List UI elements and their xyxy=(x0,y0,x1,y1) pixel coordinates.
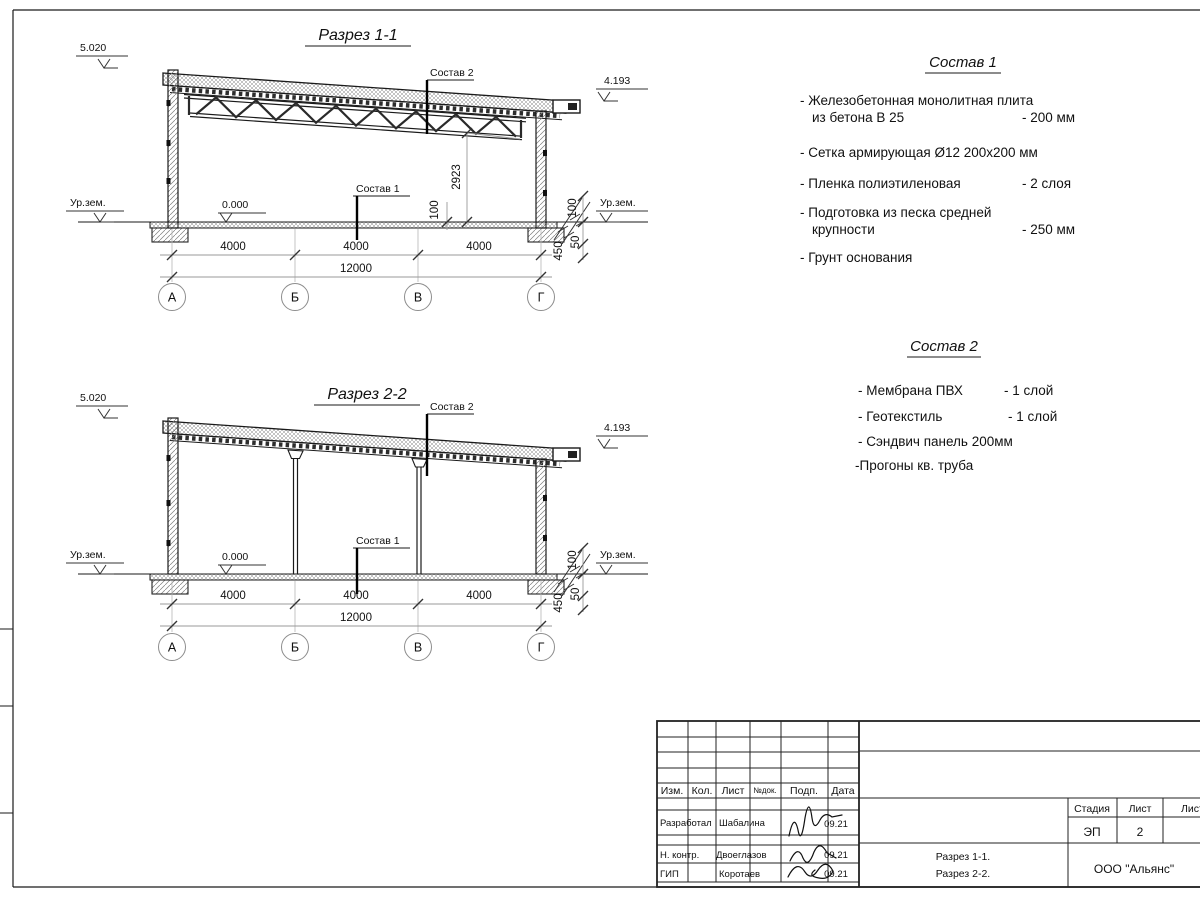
composition1-item: крупности xyxy=(812,222,875,237)
dim-stack-right: 100 50 450 xyxy=(553,191,588,263)
svg-text:100: 100 xyxy=(567,550,579,569)
svg-text:4000: 4000 xyxy=(220,590,246,602)
composition2-value: - 1 слой xyxy=(1004,383,1053,398)
drawing-canvas: Разрез 1-1 xyxy=(0,0,1200,900)
axis-g: Г xyxy=(538,291,545,305)
roof-slab-2 xyxy=(163,421,566,461)
section1-title: Разрез 1-1 xyxy=(318,27,397,44)
level-mark-4193-2: 4.193 xyxy=(596,422,648,448)
level-mark-4193: 4.193 xyxy=(596,75,648,101)
composition1-item: - Пленка полиэтиленовая xyxy=(800,176,961,191)
tb-header-kol: Кол. xyxy=(692,785,713,797)
composition-2: Состав 2 - Мембрана ПВХ - 1 слой - Геоте… xyxy=(855,338,1057,473)
composition1-value: - 2 слоя xyxy=(1022,176,1071,191)
section-2-2: Разрез 2-2 xyxy=(66,386,648,661)
svg-text:100: 100 xyxy=(429,200,441,219)
svg-text:100: 100 xyxy=(567,198,579,217)
composition1-item: из бетона В 25 xyxy=(812,110,904,125)
svg-text:Ур.зем.: Ур.зем. xyxy=(70,197,106,209)
composition1-value: - 200 мм xyxy=(1022,110,1075,125)
tb-stadia-value: ЭП xyxy=(1083,825,1100,839)
axis-a: А xyxy=(168,291,177,305)
tb-name-1: Двоеглазов xyxy=(716,850,767,861)
tb-date-0: 09.21 xyxy=(824,819,848,830)
level-mark-5020-2: 5.020 xyxy=(76,392,128,418)
column-g-2 xyxy=(536,459,546,574)
svg-text:5.020: 5.020 xyxy=(80,42,106,54)
tb-header-data: Дата xyxy=(831,785,854,797)
svg-text:4000: 4000 xyxy=(343,590,369,602)
tb-name-0: Шабалина xyxy=(719,818,766,829)
foundation-right xyxy=(528,228,564,242)
column-b-intermediate xyxy=(288,450,303,574)
leader-sostav1-label-2: Состав 1 xyxy=(356,535,400,547)
tb-role-2: ГИП xyxy=(660,869,679,880)
svg-text:0.000: 0.000 xyxy=(222,551,248,563)
svg-text:0.000: 0.000 xyxy=(222,199,248,211)
svg-text:50: 50 xyxy=(570,236,582,249)
composition1-item: - Железобетонная монолитная плита xyxy=(800,93,1034,108)
axis-b-2: Б xyxy=(291,641,299,655)
svg-text:4.193: 4.193 xyxy=(604,422,630,434)
composition2-item: - Мембрана ПВХ xyxy=(858,383,963,398)
axis-bubbles-2: А Б В Г xyxy=(159,634,555,661)
dim-stack-right-2: 100 50 450 xyxy=(553,543,588,615)
axis-g-2: Г xyxy=(538,641,545,655)
svg-text:Ур.зем.: Ур.зем. xyxy=(600,197,636,209)
svg-text:4000: 4000 xyxy=(343,241,369,253)
composition1-value: - 250 мм xyxy=(1022,222,1075,237)
svg-text:4000: 4000 xyxy=(220,241,246,253)
leader-sostav2-label: Состав 2 xyxy=(430,67,474,79)
tb-header-izm: Изм. xyxy=(661,785,684,797)
title-block: Изм. Кол. Лист №док. Подп. Дата Разработ… xyxy=(657,721,1200,887)
tb-listov-header: Листов xyxy=(1181,803,1200,815)
tb-list-header: Лист xyxy=(1129,803,1152,815)
foundation-left-2 xyxy=(152,580,188,594)
svg-text:12000: 12000 xyxy=(340,263,372,275)
roof-edge-cap-2 xyxy=(553,448,580,461)
svg-text:450: 450 xyxy=(553,241,565,260)
composition2-item: - Сэндвич панель 200мм xyxy=(858,434,1013,449)
svg-text:Ур.зем.: Ур.зем. xyxy=(600,549,636,561)
roof-edge-cap xyxy=(553,100,580,113)
drawing-sheet: Разрез 1-1 xyxy=(0,0,1200,900)
leader-sostav1-label: Состав 1 xyxy=(356,183,400,195)
ground-level-left-2: Ур.зем. xyxy=(66,549,124,574)
composition2-title: Состав 2 xyxy=(910,338,978,355)
leader-sostav2-label-2: Состав 2 xyxy=(430,401,474,413)
tb-doc-line2: Разрез 2-2. xyxy=(936,868,990,880)
leader-sostav1: Состав 1 xyxy=(353,183,410,240)
ground-level-left: Ур.зем. xyxy=(66,197,124,222)
foundation-right-2 xyxy=(528,580,564,594)
tb-stadia-header: Стадия xyxy=(1074,803,1110,815)
svg-text:450: 450 xyxy=(553,593,565,612)
composition1-title: Состав 1 xyxy=(929,54,997,71)
tb-date-1: 09.21 xyxy=(824,850,848,861)
tb-date-2: 09.21 xyxy=(824,869,848,880)
tb-role-1: Н. контр. xyxy=(660,850,699,861)
svg-text:4000: 4000 xyxy=(466,241,492,253)
composition-1: Состав 1 - Железобетонная монолитная пли… xyxy=(800,54,1075,265)
composition2-value: - 1 слой xyxy=(1008,409,1057,424)
column-g xyxy=(536,111,546,228)
tb-company: ООО "Альянс" xyxy=(1094,862,1174,876)
svg-text:50: 50 xyxy=(570,588,582,601)
level-mark-0000: 0.000 xyxy=(218,199,266,222)
sheet-frame xyxy=(0,10,1200,887)
axis-a-2: А xyxy=(168,641,177,655)
axis-bubbles: А Б В Г xyxy=(159,284,555,311)
composition1-item: - Сетка армирующая Ø12 200х200 мм xyxy=(800,145,1038,160)
composition2-item: -Прогоны кв. труба xyxy=(855,458,974,473)
svg-text:12000: 12000 xyxy=(340,612,372,624)
tb-name-2: Коротаев xyxy=(719,869,760,880)
section-1-1: Разрез 1-1 xyxy=(66,27,648,311)
axis-v: В xyxy=(414,291,422,305)
dim-2923: 2923 xyxy=(451,128,520,227)
column-a-2 xyxy=(168,418,178,574)
svg-text:Ур.зем.: Ур.зем. xyxy=(70,549,106,561)
level-mark-0000-2: 0.000 xyxy=(218,551,266,574)
tb-list-value: 2 xyxy=(1137,825,1144,839)
tb-header-list: Лист xyxy=(722,785,745,797)
section2-title: Разрез 2-2 xyxy=(327,386,406,403)
column-v-intermediate xyxy=(412,459,427,575)
tb-doc-line1: Разрез 1-1. xyxy=(936,851,990,863)
composition2-item: - Геотекстиль xyxy=(858,409,942,424)
ground-level-right: Ур.зем. xyxy=(596,197,648,222)
svg-text:5.020: 5.020 xyxy=(80,392,106,404)
axis-v-2: В xyxy=(414,641,422,655)
composition1-item: - Подготовка из песка средней xyxy=(800,205,991,220)
composition1-item: - Грунт основания xyxy=(800,250,912,265)
svg-text:2923: 2923 xyxy=(451,164,463,190)
leader-sostav1-2: Состав 1 xyxy=(353,535,410,594)
foundation-left xyxy=(152,228,188,242)
tb-header-ndok: №док. xyxy=(753,786,776,795)
leader-sostav2-2: Состав 2 xyxy=(427,401,474,476)
svg-text:4000: 4000 xyxy=(466,590,492,602)
column-joint-marks-2 xyxy=(167,455,548,546)
column-a xyxy=(168,70,178,228)
tb-header-podp: Подп. xyxy=(790,785,818,797)
level-mark-5020: 5.020 xyxy=(76,42,128,68)
svg-text:4.193: 4.193 xyxy=(604,75,630,87)
tb-role-0: Разработал xyxy=(660,818,712,829)
axis-b: Б xyxy=(291,291,299,305)
ground-level-right-2: Ур.зем. xyxy=(596,549,648,574)
